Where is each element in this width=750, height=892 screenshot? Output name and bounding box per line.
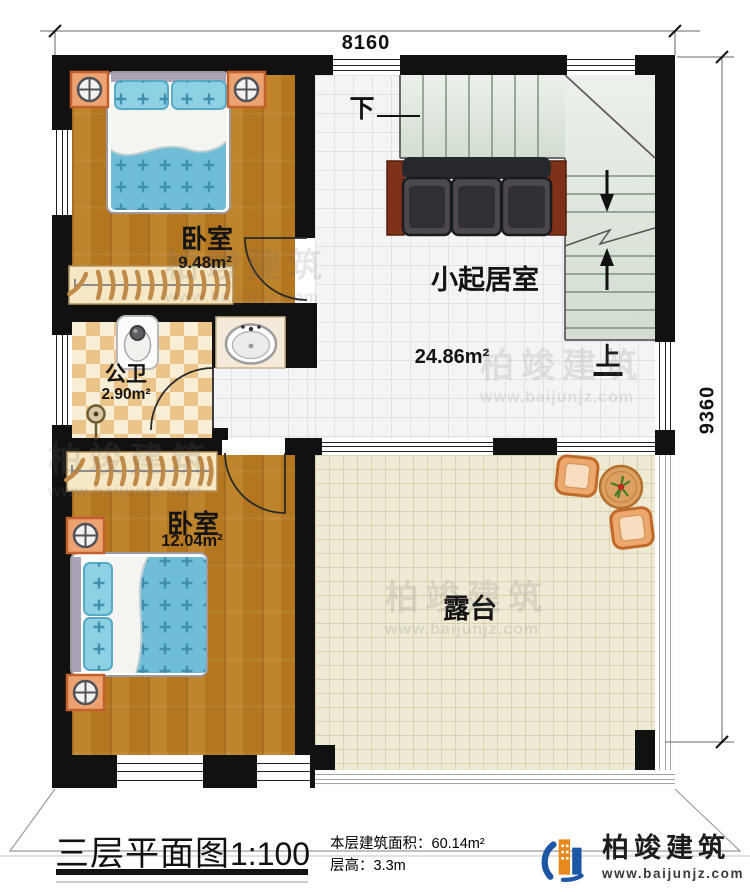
company-website: www.baijunjz.com bbox=[602, 866, 744, 881]
living-room-label: 小起居室 bbox=[431, 266, 539, 294]
dimension-right: 9360 bbox=[697, 386, 720, 435]
wall-bedroom2-bottom-b bbox=[203, 755, 257, 788]
info-height-line: 层高：3.3m bbox=[330, 855, 485, 877]
watermark-2: 柏竣建筑 www.baijunjz.com bbox=[480, 338, 644, 407]
watermark-1: 柏竣建筑 www.baijunjz.com bbox=[165, 238, 329, 307]
window-left-bathroom bbox=[52, 335, 72, 425]
plan-scale: 1:100 bbox=[230, 836, 310, 872]
window-top-2 bbox=[567, 55, 635, 75]
window-bedroom2-2 bbox=[257, 755, 310, 788]
company-logo: 柏竣建筑 www.baijunjz.com bbox=[540, 830, 744, 884]
stair-right-flight bbox=[565, 75, 655, 340]
living-room-area: 24.86m² bbox=[415, 347, 490, 368]
info-area-line: 本层建筑面积：60.14m² bbox=[330, 833, 485, 855]
company-name: 柏竣建筑 bbox=[602, 833, 744, 863]
wall-bedroom2-terrace bbox=[295, 438, 315, 788]
plan-info: 本层建筑面积：60.14m² 层高：3.3m bbox=[330, 833, 485, 877]
bedroom2-area: 12.04m² bbox=[161, 533, 222, 550]
company-logo-icon bbox=[540, 830, 594, 884]
bathroom-area: 2.90m² bbox=[101, 387, 150, 403]
window-bedroom2-1 bbox=[117, 755, 203, 788]
wall-bedroom2-bottom-a bbox=[52, 755, 117, 788]
dimension-top: 8160 bbox=[342, 32, 391, 55]
wall-bathroom-right-a bbox=[212, 322, 228, 368]
window-right-living bbox=[655, 342, 675, 430]
plan-title-text: 三层平面图 bbox=[55, 835, 230, 873]
terrace-slider-2 bbox=[557, 438, 655, 455]
stairs-down-label: 下 bbox=[349, 96, 374, 122]
stair-upper-flight bbox=[400, 75, 565, 158]
terrace-railing-bottom bbox=[315, 770, 675, 788]
watermark-3: 柏竣建筑 www.baijunjz.com bbox=[48, 432, 212, 501]
bathroom-label: 公卫 bbox=[105, 364, 147, 386]
wall-sink-column bbox=[285, 303, 317, 368]
title-underline-gray bbox=[56, 881, 308, 883]
window-top-1 bbox=[333, 55, 400, 75]
terrace-slider-1 bbox=[322, 438, 493, 455]
window-left-bedroom1 bbox=[52, 130, 72, 215]
terrace-railing-right bbox=[655, 455, 675, 770]
floor-plan-canvas: 卧室 9.48m² 小起居室 24.86m² 公卫 2.90m² 卧室 12.0… bbox=[0, 0, 750, 892]
wall-living-terrace-segment bbox=[493, 438, 557, 455]
title-underline bbox=[56, 869, 308, 875]
wall-bedroom1-living bbox=[295, 55, 315, 238]
watermark-4: 柏竣建筑 www.baijunjz.com bbox=[385, 570, 549, 639]
plan-title: 三层平面图1:100 bbox=[55, 826, 310, 875]
